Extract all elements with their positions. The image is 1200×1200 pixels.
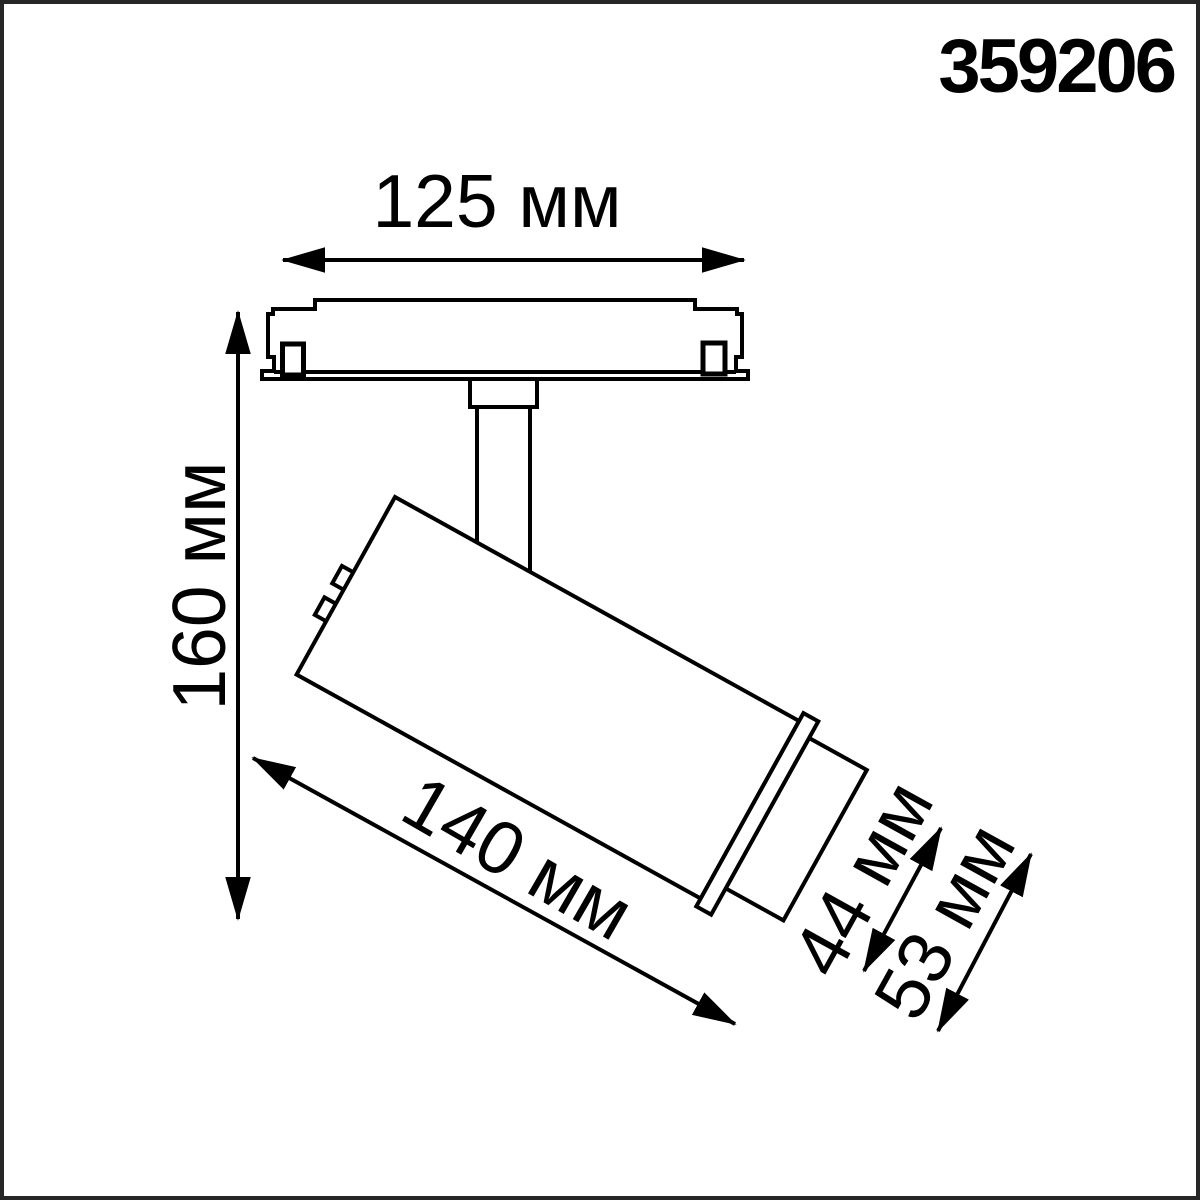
- dim-label-track-width: 125 мм: [372, 159, 621, 243]
- track-adapter-outline: [262, 300, 748, 379]
- adapter-left-clip: [283, 344, 304, 375]
- dimension-drawing: 359206 125 мм 160 мм 140 мм 44 мм 53 мм: [0, 0, 1200, 1200]
- adapter-right-clip: [703, 343, 725, 374]
- product-code: 359206: [938, 24, 1174, 109]
- stem-connector-block: [470, 379, 537, 407]
- dim-label-height: 160 мм: [157, 461, 241, 710]
- drawing-canvas: 359206 125 мм 160 мм 140 мм 44 мм 53 мм: [0, 0, 1200, 1200]
